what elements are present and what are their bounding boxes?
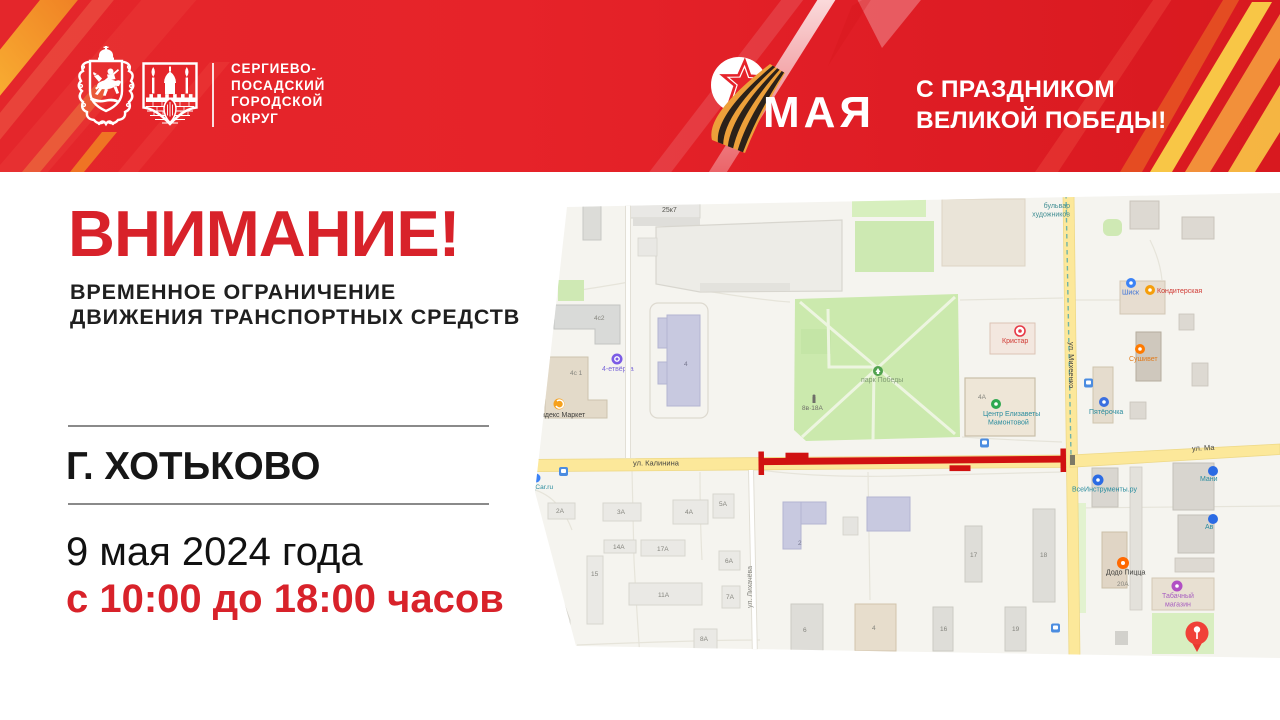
svg-text:7А: 7А [726,594,735,601]
svg-text:18: 18 [1040,552,1048,559]
svg-text:19: 19 [1012,626,1020,633]
svg-text:17: 17 [970,552,978,559]
svg-text:2: 2 [798,540,802,547]
svg-text:5А: 5А [719,501,728,508]
svg-text:4А: 4А [685,509,694,516]
svg-text:ВсеИнструменты.ру: ВсеИнструменты.ру [1072,487,1137,494]
svg-text:20А: 20А [1117,581,1129,588]
svg-text:бульвар: бульвар [1044,202,1070,210]
svg-text:15: 15 [591,571,599,578]
svg-text:ул. Михеенко: ул. Михеенко [1067,342,1076,388]
svg-text:Шиск: Шиск [1122,290,1140,297]
svg-text:17А: 17А [657,546,669,553]
svg-text:Ав: Ав [1205,524,1214,531]
svg-text:4А: 4А [978,394,987,401]
svg-text:Кондитерская: Кондитерская [1157,288,1202,295]
svg-text:парк Победы: парк Победы [861,376,903,384]
svg-text:8А: 8А [700,636,709,643]
svg-text:14А: 14А [613,544,625,551]
svg-text:Додо Пицца: Додо Пицца [1106,570,1145,577]
svg-text:Сушивет: Сушивет [1129,356,1158,363]
svg-text:Мамонтовой: Мамонтовой [988,419,1029,427]
svg-text:2А: 2А [556,508,565,515]
svg-text:ндCar.ru: ндCar.ru [530,484,553,491]
svg-text:11А: 11А [658,592,670,599]
svg-text:16: 16 [940,626,948,633]
svg-text:8в·18А: 8в·18А [802,405,823,412]
svg-text:ул. Ма: ул. Ма [1192,443,1216,453]
svg-text:Центр Елизаветы: Центр Елизаветы [983,411,1040,418]
svg-text:4с2: 4с2 [594,315,605,322]
svg-text:4: 4 [872,625,876,632]
svg-text:25к7: 25к7 [662,207,677,214]
svg-text:6А: 6А [725,558,734,565]
svg-text:4с 1: 4с 1 [570,370,583,377]
svg-text:Кристар: Кристар [1002,338,1028,345]
svg-text:3А: 3А [617,509,626,516]
svg-text:ул. Лихачёва: ул. Лихачёва [747,566,754,608]
svg-text:художников: художников [1032,212,1070,219]
svg-text:Пятёрочка: Пятёрочка [1089,409,1123,416]
svg-text:Табачный: Табачный [1162,592,1194,600]
svg-text:Мани: Мани [1200,476,1218,483]
svg-text:Яндекс Маркет: Яндекс Маркет [536,412,586,419]
svg-text:4: 4 [684,361,688,368]
svg-text:ул. Калинина: ул. Калинина [633,459,680,468]
svg-text:магазин: магазин [1165,602,1191,609]
svg-text:6: 6 [803,627,807,634]
